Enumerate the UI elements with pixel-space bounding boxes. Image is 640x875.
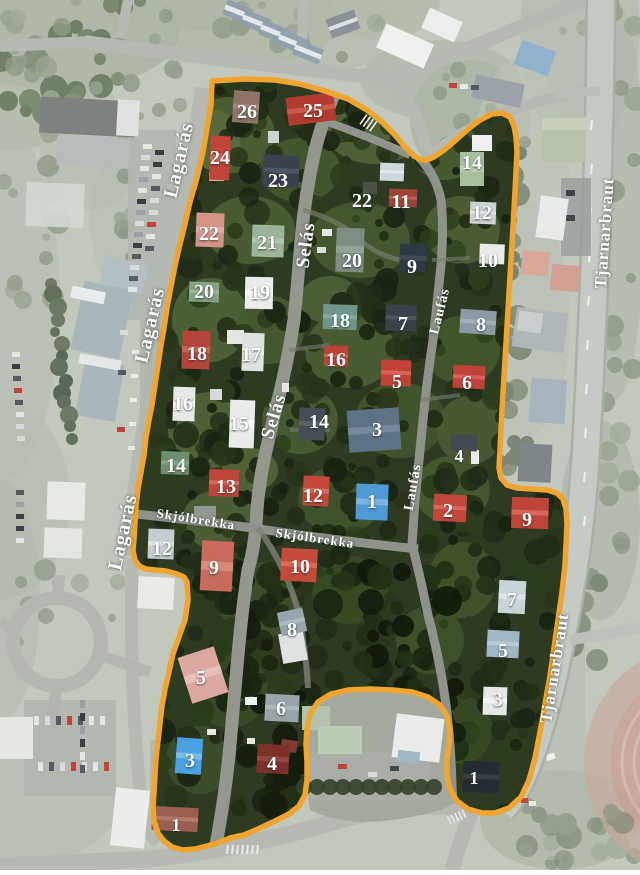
svg-text:7: 7 xyxy=(507,589,517,611)
svg-text:5: 5 xyxy=(498,640,508,662)
svg-text:1: 1 xyxy=(470,768,479,788)
svg-text:18: 18 xyxy=(187,343,207,365)
svg-text:21: 21 xyxy=(257,232,277,254)
svg-text:9: 9 xyxy=(407,256,417,278)
svg-text:10: 10 xyxy=(478,250,498,272)
svg-text:25: 25 xyxy=(303,100,323,122)
svg-text:23: 23 xyxy=(268,170,288,192)
svg-text:6: 6 xyxy=(276,698,286,720)
svg-text:16: 16 xyxy=(326,349,346,371)
svg-text:12: 12 xyxy=(472,202,492,224)
svg-text:6: 6 xyxy=(462,372,472,394)
svg-text:8: 8 xyxy=(476,314,486,336)
svg-text:14: 14 xyxy=(309,411,329,433)
svg-text:5: 5 xyxy=(392,371,402,393)
svg-text:14: 14 xyxy=(462,152,482,174)
svg-text:7: 7 xyxy=(398,313,408,335)
svg-text:1: 1 xyxy=(367,491,377,513)
svg-text:16: 16 xyxy=(173,393,193,415)
svg-text:13: 13 xyxy=(216,476,236,498)
svg-text:1: 1 xyxy=(172,815,181,835)
svg-text:20: 20 xyxy=(194,281,214,303)
svg-text:18: 18 xyxy=(330,310,350,332)
svg-text:3: 3 xyxy=(372,419,382,441)
svg-text:4: 4 xyxy=(455,446,464,466)
svg-text:20: 20 xyxy=(342,250,362,272)
svg-text:2: 2 xyxy=(443,500,453,522)
svg-text:5: 5 xyxy=(196,667,206,689)
svg-text:22: 22 xyxy=(199,223,219,245)
svg-text:12: 12 xyxy=(303,485,323,507)
svg-text:12: 12 xyxy=(152,538,172,560)
svg-text:9: 9 xyxy=(522,509,532,531)
svg-text:24: 24 xyxy=(210,147,230,169)
svg-text:17: 17 xyxy=(241,344,261,366)
svg-text:11: 11 xyxy=(392,191,411,213)
svg-text:3: 3 xyxy=(185,750,195,772)
svg-text:8: 8 xyxy=(287,619,297,641)
svg-text:9: 9 xyxy=(209,557,219,579)
svg-text:22: 22 xyxy=(352,190,372,212)
svg-text:26: 26 xyxy=(237,101,257,123)
svg-text:14: 14 xyxy=(166,455,186,477)
svg-text:4: 4 xyxy=(267,753,277,775)
svg-text:19: 19 xyxy=(250,282,270,304)
svg-text:10: 10 xyxy=(290,556,310,578)
svg-text:15: 15 xyxy=(229,413,249,435)
svg-text:3: 3 xyxy=(493,689,503,711)
